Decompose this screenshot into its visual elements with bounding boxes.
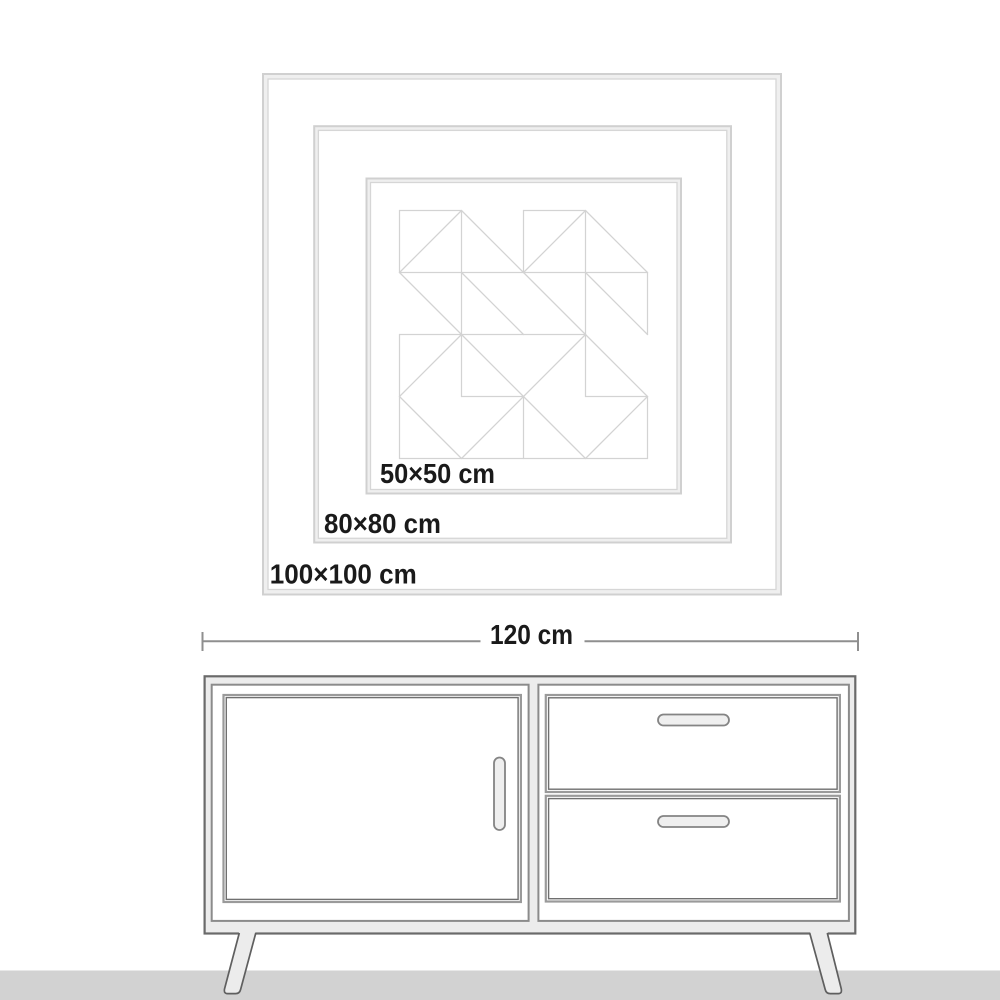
svg-text:80×80 cm: 80×80 cm — [324, 508, 441, 539]
svg-text:100×100 cm: 100×100 cm — [270, 558, 417, 589]
svg-text:120 cm: 120 cm — [490, 619, 573, 650]
svg-text:50×50 cm: 50×50 cm — [380, 458, 495, 489]
